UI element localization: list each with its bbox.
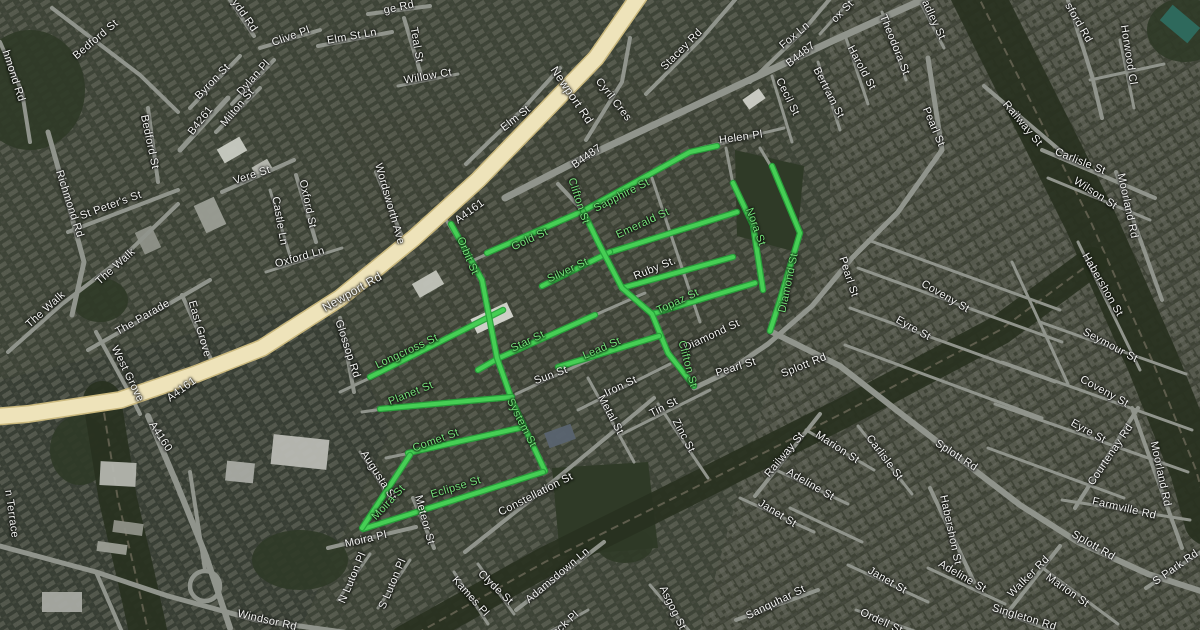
- building-shape: [271, 434, 330, 470]
- building-shape: [42, 592, 82, 612]
- satellite-map[interactable]: Bedford Sthmond Rdydd RdClive PlElm St L…: [0, 0, 1200, 630]
- building-shape: [225, 461, 255, 484]
- building-shape: [99, 461, 136, 487]
- map-graphics: [0, 0, 1200, 630]
- park-shape: [252, 530, 348, 590]
